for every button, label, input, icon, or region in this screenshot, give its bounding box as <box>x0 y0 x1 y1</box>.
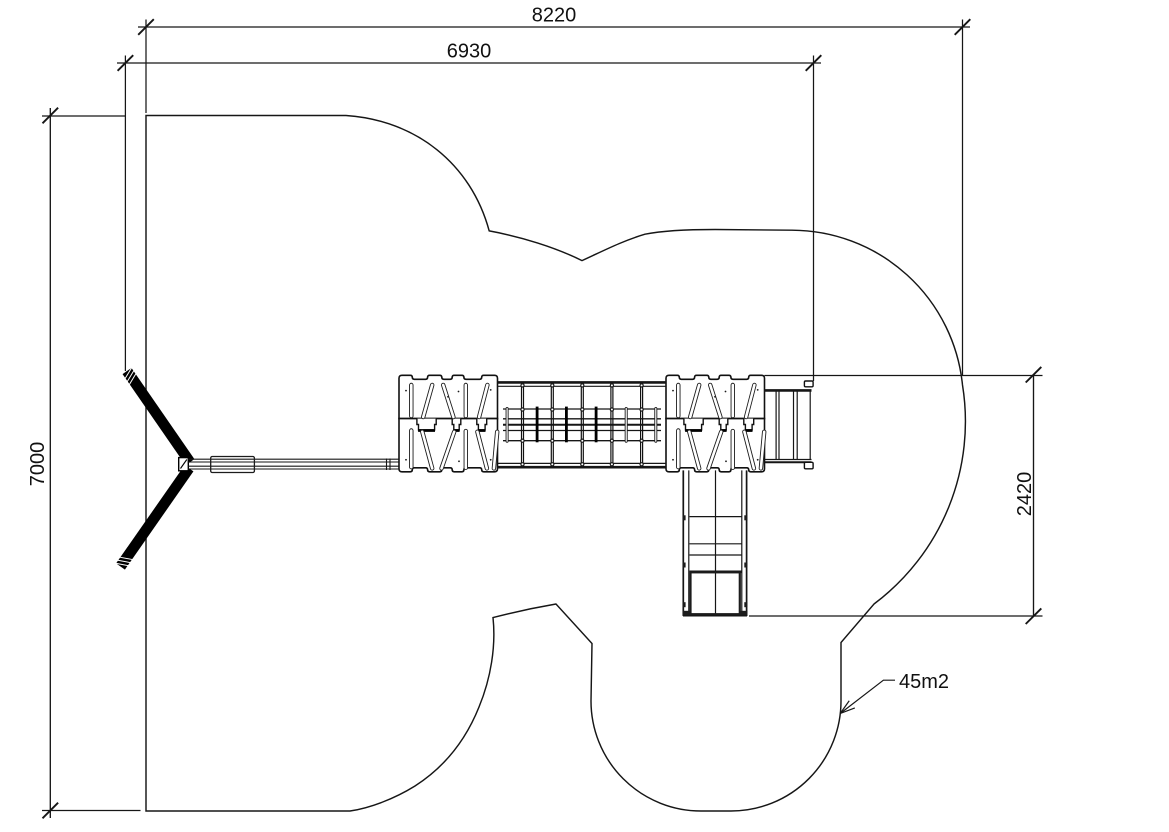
svg-text:7000: 7000 <box>27 442 49 487</box>
svg-text:45m2: 45m2 <box>899 671 949 693</box>
svg-text:6930: 6930 <box>447 41 492 63</box>
svg-text:2420: 2420 <box>1014 472 1036 517</box>
svg-text:8220: 8220 <box>532 5 577 27</box>
